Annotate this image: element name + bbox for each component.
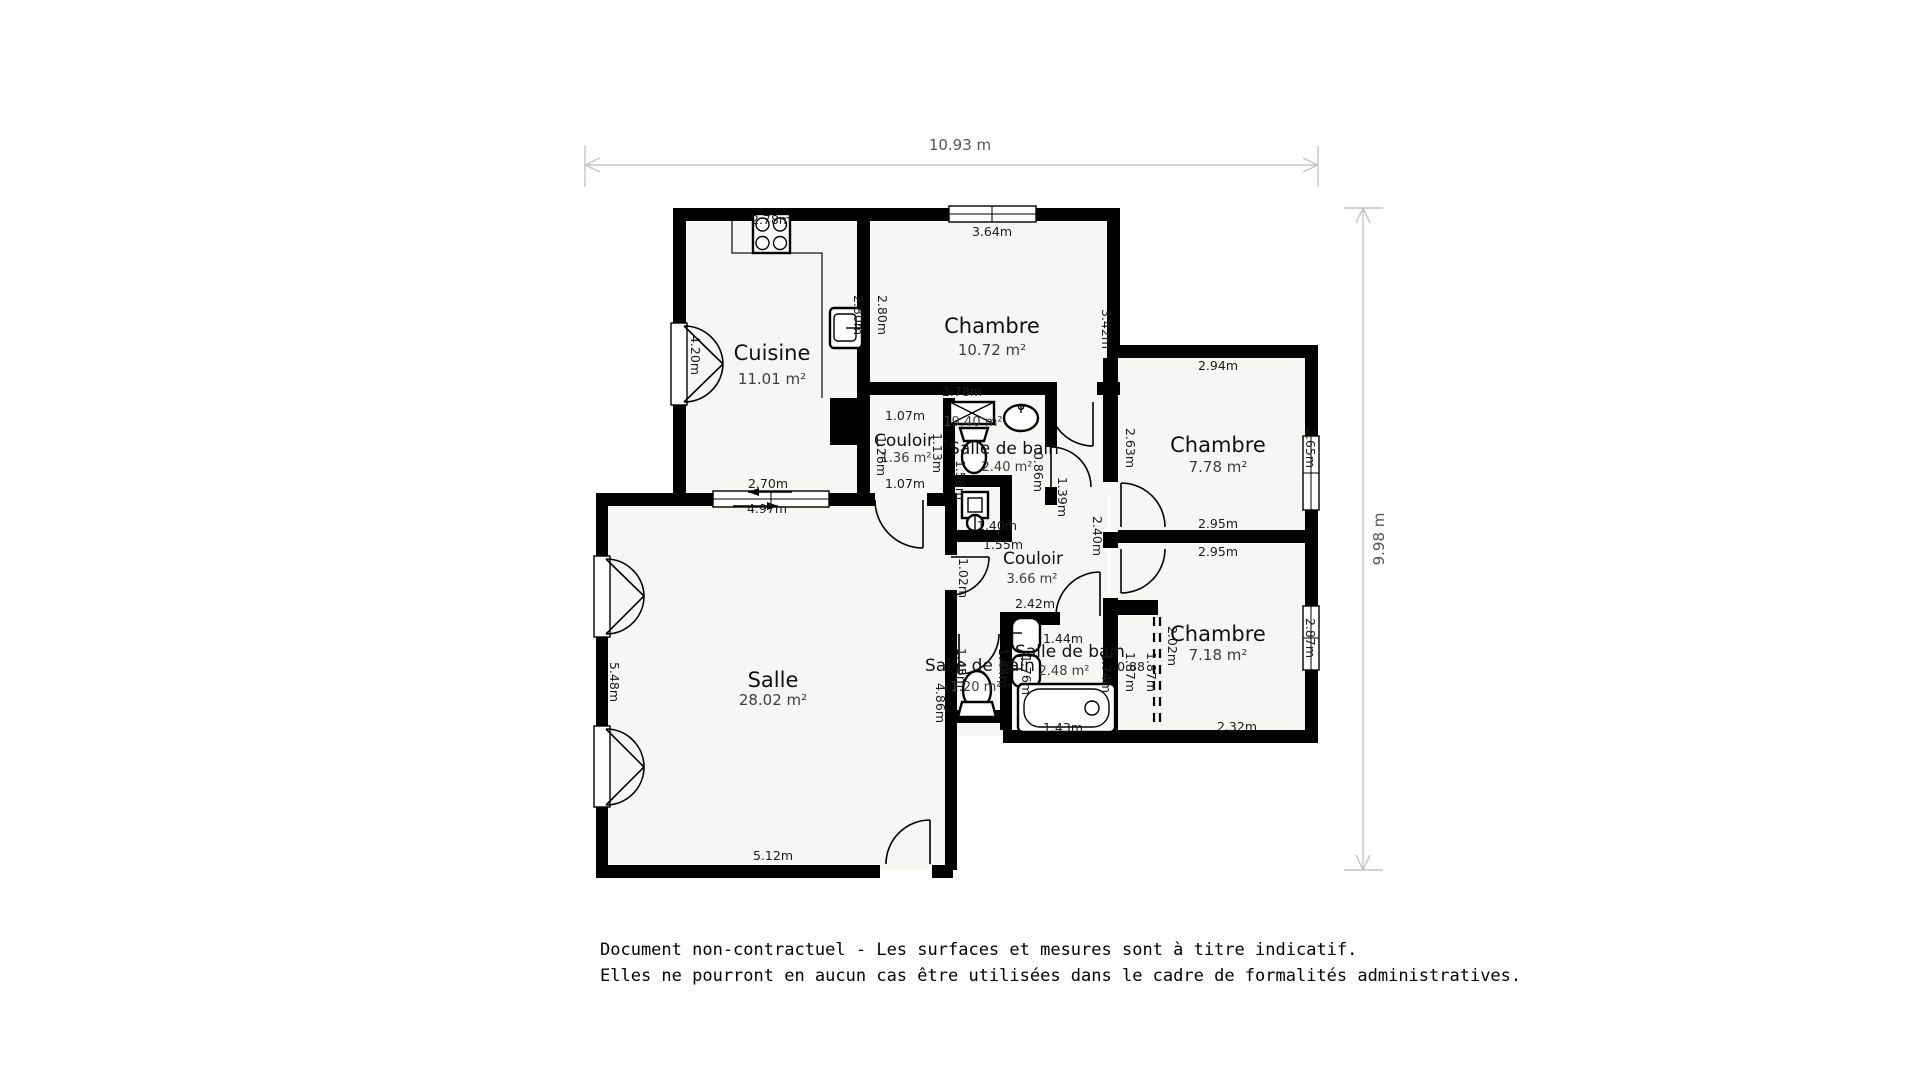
dim-chambre3-bottom: 2.32m: [1217, 719, 1257, 734]
room-area-chambre2: 7.78 m²: [1189, 458, 1248, 476]
dim-couloir1-top: 1.07m: [885, 408, 925, 423]
dim-chambre2-left: 2.63m: [1123, 428, 1138, 468]
dim-kitchen-sink: 2.80m: [851, 295, 866, 335]
disclaimer: Document non-contractuel - Les surfaces …: [600, 940, 1521, 986]
room-area-couloir2: 3.66 m²: [1007, 572, 1058, 587]
room-name-salle: Salle: [748, 668, 799, 692]
dim-chambre3-right: 2.87m: [1303, 618, 1318, 658]
dim-chambre3-left-a: 1.87m: [1123, 652, 1138, 692]
dim-sdb120-right: 1.44m: [996, 648, 1011, 688]
dim-sdb240-door: 1.39m: [1055, 477, 1070, 517]
french-window-frame-salle-1: [594, 556, 610, 637]
dim-couloir2-bottom: 2.42m: [1015, 596, 1055, 611]
dim-couloir2-top: 1.55m: [983, 537, 1023, 552]
disclaimer-line2: Elles ne pourront en aucun cas être util…: [600, 966, 1521, 986]
room-name-couloir2: Couloir: [1003, 549, 1063, 569]
dim-couloir2-right: 2.40m: [1090, 516, 1105, 556]
window-top: [949, 206, 1036, 222]
room-name-chambre3: Chambre: [1170, 622, 1266, 646]
dim-chambre2-top: 2.94m: [1198, 358, 1238, 373]
room-area-sdb248: 2.48 m²: [1039, 664, 1090, 679]
dim-kitchen-door: 4.20m: [688, 335, 703, 375]
dim-sdb248-top: 1.44m: [1043, 631, 1083, 646]
total-height-label: 9.98 m: [1370, 513, 1388, 566]
french-door-frame-kitchen: [671, 323, 687, 405]
dim-salle-win-b: 4.97m: [747, 501, 787, 516]
dim-chambre1-window: 3.64m: [972, 224, 1012, 239]
room-area-sdb240: 2.40 m²: [982, 460, 1033, 475]
dim-sdb240-right: 0.86m: [1031, 452, 1046, 492]
french-window-frame-salle-2: [594, 726, 610, 807]
dim-sdb240-alt-area: 19.40 m²: [943, 415, 1002, 430]
dim-chambre3-left-b: 1.87m: [1144, 652, 1159, 692]
dim-sdb240-left: 1.58m: [953, 460, 968, 500]
dim-sdb120-left: 1.45m: [954, 648, 969, 688]
dim-chambre1-right: 3.42m: [1099, 309, 1114, 349]
dim-salle-bottom: 5.12m: [753, 848, 793, 863]
dim-salle-right: 4.86m: [933, 683, 948, 723]
dim-sdb248-right: 1.74m: [1099, 653, 1114, 693]
dim-couloir1-bottom: 1.07m: [885, 476, 925, 491]
total-width-label: 10.93 m: [929, 136, 991, 154]
room-name-chambre2: Chambre: [1170, 433, 1266, 457]
room-area-salle: 28.02 m²: [739, 691, 807, 709]
dim-chambre1-bottom: 2.78m: [942, 384, 982, 399]
dim-salle-win-a: 2.70m: [748, 476, 788, 491]
dim-chambre1-left: 2.80m: [875, 295, 890, 335]
dim-chambre3-closet-h: 2.02m: [1165, 626, 1180, 666]
dim-couloir1-left: 1.26m: [874, 436, 889, 476]
dim-kitchen-top: 2.78m: [751, 212, 791, 227]
room-name-chambre1: Chambre: [944, 314, 1040, 338]
dim-chambre2-right: 2.65m: [1303, 428, 1318, 468]
floor-plan-page: 10.93 m 9.98 m Cuisine 11.01 m² Chambre …: [0, 0, 1920, 1080]
dim-couloir2-left: 1.02m: [956, 558, 971, 598]
washbasin-icon-sdb240: [1004, 405, 1038, 432]
room-name-sdb120: Salle de bain: [925, 656, 1035, 676]
room-area-chambre1: 10.72 m²: [958, 341, 1026, 359]
dim-chambre2-bottom: 2.95m: [1198, 516, 1238, 531]
floor-plan: 10.93 m 9.98 m Cuisine 11.01 m² Chambre …: [0, 0, 1920, 1080]
room-name-cuisine: Cuisine: [734, 341, 811, 365]
dim-chambre3-top: 2.95m: [1198, 544, 1238, 559]
dim-salle-left: 5.48m: [607, 662, 622, 702]
dim-couloir1-right: 1.13m: [930, 433, 945, 473]
dim-sdb248-left: 1.76m: [1019, 655, 1034, 695]
dim-wc-width: 1.40m: [977, 518, 1017, 533]
room-area-cuisine: 11.01 m²: [738, 370, 806, 388]
disclaimer-line1: Document non-contractuel - Les surfaces …: [600, 940, 1357, 960]
dim-sdb248-tub: 1.43m: [1043, 720, 1083, 735]
room-area-chambre3: 7.18 m²: [1189, 646, 1248, 664]
